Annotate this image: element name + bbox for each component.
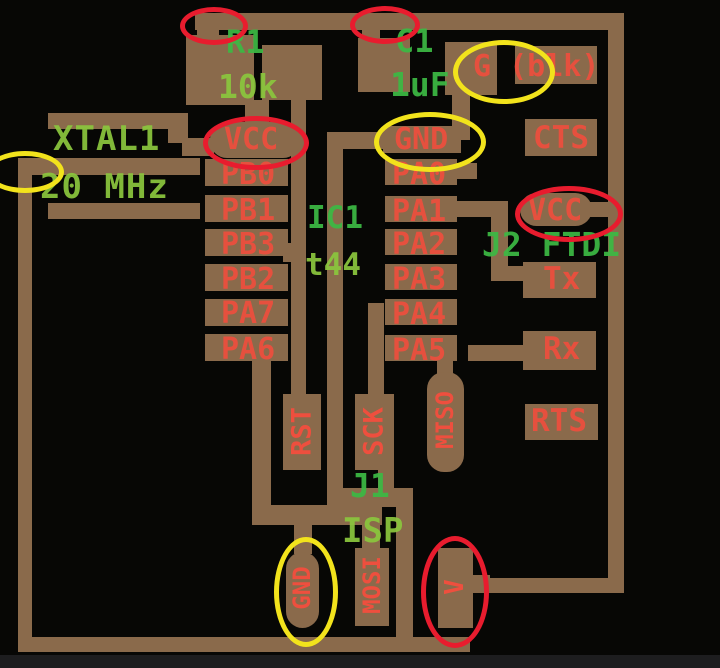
pin-label-rst: RST: [289, 396, 316, 468]
pin-label-rts: RTS: [531, 406, 587, 437]
pin-label-tx: Tx: [543, 264, 580, 295]
trace-bottom-horizontal: [18, 637, 470, 652]
label-c1-value: 1uF: [390, 68, 450, 101]
pin-label-pa3: PA3: [392, 265, 446, 295]
bottom-gray-band: [0, 655, 720, 668]
label-xtal1: XTAL1: [53, 122, 160, 156]
pin-label-pb3: PB3: [221, 230, 275, 260]
pin-label-pb1: PB1: [221, 196, 275, 226]
pin-label-pa2: PA2: [392, 230, 446, 260]
annotation-red-ellipse-v-bottom: [421, 536, 489, 648]
trace-pa6-vertical: [252, 361, 271, 511]
pin-label-mosi: MOSI: [360, 541, 384, 629]
label-ic1-value: t44: [305, 250, 361, 281]
pin-label-pa1: PA1: [392, 197, 446, 227]
trace-right-vertical: [608, 13, 624, 591]
pin-label-sck: SCK: [361, 396, 388, 468]
label-r1-value: 10k: [218, 70, 278, 103]
pin-label-pb2: PB2: [221, 265, 275, 295]
annotation-yellow-ellipse-gnd-bottom: [274, 537, 338, 647]
annotation-red-ellipse-top-left: [180, 7, 248, 45]
trace-rx-stub: [468, 345, 525, 361]
annotation-red-ellipse-top-right: [350, 6, 420, 44]
trace-left-edge-vertical: [18, 158, 32, 652]
annotation-yellow-ellipse-gnd-top: [374, 112, 486, 172]
pin-label-rx: Rx: [543, 334, 580, 365]
pin-label-pa6: PA6: [221, 335, 275, 365]
trace-pa4-to-sck: [368, 303, 384, 398]
annotation-red-ellipse-vcc-right: [515, 186, 623, 242]
label-j1: J1: [350, 469, 390, 502]
pin-label-miso: MISO: [433, 376, 457, 464]
trace-mid-vertical: [327, 138, 343, 493]
label-ic1: IC1: [307, 203, 363, 234]
pin-label-pa7: PA7: [221, 299, 275, 329]
annotation-red-ellipse-vcc-left: [203, 116, 309, 170]
trace-pb3-stub: [283, 243, 295, 262]
pcb-board: R1 10k C1 1uF G (blk) XTAL1 20 MHz VCC P…: [0, 0, 720, 668]
pin-label-cts: CTS: [533, 123, 589, 154]
pin-label-pa4: PA4: [392, 300, 446, 330]
annotation-yellow-ellipse-g-blk: [453, 40, 555, 104]
pin-label-pa5: PA5: [392, 336, 446, 366]
trace-tx-stub: [505, 266, 525, 281]
